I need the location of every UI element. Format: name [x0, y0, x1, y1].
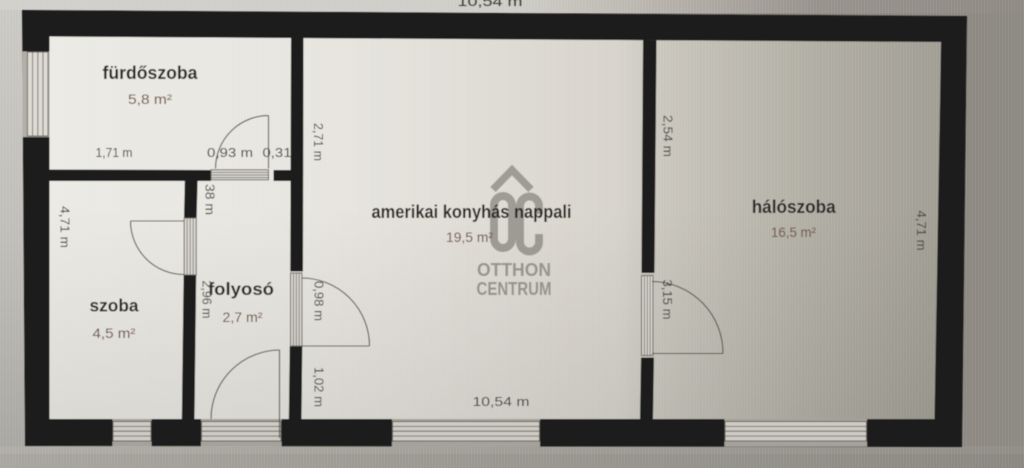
svg-text:10,54 m: 10,54 m — [458, 0, 523, 9]
